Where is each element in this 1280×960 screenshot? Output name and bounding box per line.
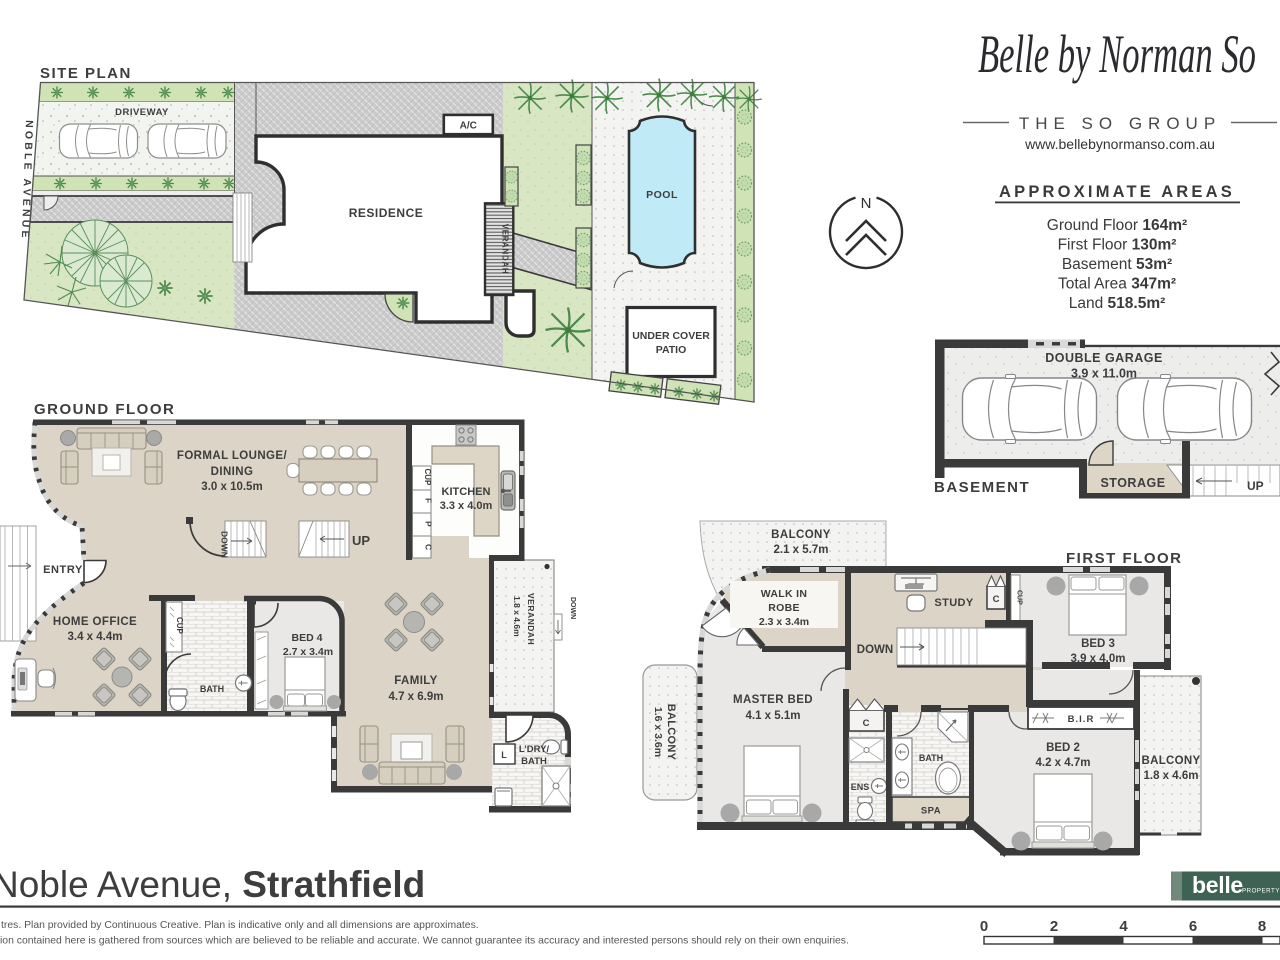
svg-text:CUP: CUP [175,617,184,635]
svg-text:STORAGE: STORAGE [1100,476,1165,490]
svg-text:FAMILY: FAMILY [394,675,438,687]
svg-text:Total Area 347m²: Total Area 347m² [1058,276,1176,293]
svg-text:THE SO GROUP: THE SO GROUP [1019,114,1221,133]
svg-text:BED 3: BED 3 [1081,638,1115,650]
svg-text:DOUBLE GARAGE: DOUBLE GARAGE [1045,351,1163,365]
svg-text:2: 2 [1050,918,1058,935]
svg-text:BED 2: BED 2 [1046,742,1080,754]
svg-text:First Floor 130m²: First Floor 130m² [1058,237,1177,254]
svg-text:C: C [863,718,870,729]
svg-text:WALK IN: WALK IN [761,588,807,600]
svg-text:8: 8 [1258,918,1266,935]
svg-text:Noble Avenue, Strathfield: Noble Avenue, Strathfield [0,864,425,905]
svg-text:Basement 53m²: Basement 53m² [1062,256,1172,273]
svg-text:3.9 x 11.0m: 3.9 x 11.0m [1071,367,1137,381]
svg-text:4.2 x 4.7m: 4.2 x 4.7m [1036,757,1091,769]
svg-text:2.1 x 5.7m: 2.1 x 5.7m [774,544,829,556]
svg-text:MASTER BED: MASTER BED [733,694,813,706]
svg-text:BASEMENT: BASEMENT [934,479,1030,496]
svg-text:ENS: ENS [851,782,870,792]
svg-text:C: C [424,544,434,550]
svg-text:BALCONY: BALCONY [771,529,831,541]
svg-text:DINING: DINING [211,466,254,478]
svg-text:3.0 x 10.5m: 3.0 x 10.5m [201,481,262,493]
svg-text:4.7 x 6.9m: 4.7 x 6.9m [389,691,444,703]
svg-text:Land 518.5m²: Land 518.5m² [1069,295,1166,312]
svg-text:HOME OFFICE: HOME OFFICE [53,616,137,628]
svg-text:P: P [424,521,434,527]
svg-text:BALCONY: BALCONY [1142,755,1201,767]
svg-text:FIRST FLOOR: FIRST FLOOR [1066,550,1183,567]
svg-text:DRIVEWAY: DRIVEWAY [115,107,169,118]
svg-text:2.7 x 3.4m: 2.7 x 3.4m [283,646,333,658]
svg-text:B.I.R: B.I.R [1068,714,1095,725]
svg-text:3.4 x 4.4m: 3.4 x 4.4m [68,631,123,643]
svg-text:STUDY: STUDY [934,597,974,609]
svg-text:KITCHEN: KITCHEN [442,486,491,498]
svg-text:3.3 x 4.0m: 3.3 x 4.0m [440,500,493,512]
svg-text:Belle by Norman So: Belle by Norman So [978,24,1256,84]
svg-text:4: 4 [1119,918,1128,935]
svg-text:SPA: SPA [921,806,941,817]
svg-text:BED 4: BED 4 [292,632,323,644]
svg-text:CUP: CUP [1016,590,1023,605]
svg-text:BALCONY: BALCONY [665,704,677,761]
svg-text:www.bellebynormanso.com.au: www.bellebynormanso.com.au [1024,136,1215,152]
svg-text:UP: UP [352,533,370,548]
svg-text:VERANDAH: VERANDAH [501,224,510,275]
svg-text:ion contained here is gathered: ion contained here is gathered from sour… [0,936,849,947]
svg-text:POOL: POOL [646,189,678,201]
svg-text:C: C [993,594,1000,605]
svg-text:F: F [424,498,434,503]
svg-text:BATH: BATH [919,753,943,763]
svg-text:GROUND FLOOR: GROUND FLOOR [34,401,175,418]
svg-text:4.1 x 5.1m: 4.1 x 5.1m [746,710,801,722]
svg-text:DOWN: DOWN [569,597,576,619]
svg-text:SITE PLAN: SITE PLAN [40,65,132,82]
svg-text:ENTRY: ENTRY [43,564,83,576]
svg-text:UP: UP [1247,479,1264,493]
svg-text:1.6 x 3.6m: 1.6 x 3.6m [652,707,664,757]
svg-text:FORMAL LOUNGE/: FORMAL LOUNGE/ [177,450,288,462]
svg-text:APPROXIMATE AREAS: APPROXIMATE AREAS [999,183,1235,201]
svg-text:PATIO: PATIO [656,344,687,356]
svg-text:UNDER COVER: UNDER COVER [632,330,710,342]
svg-text:L’DRY/: L’DRY/ [519,744,550,755]
svg-text:BATH: BATH [200,684,224,694]
svg-text:PROPERTY: PROPERTY [1242,888,1280,895]
svg-text:1.8 x 4.6m: 1.8 x 4.6m [1144,770,1199,782]
svg-text:1.8 x 4.6m: 1.8 x 4.6m [512,596,522,637]
svg-text:0: 0 [980,918,988,935]
svg-text:RESIDENCE: RESIDENCE [349,206,424,220]
svg-text:ROBE: ROBE [768,602,800,614]
svg-text:BATH: BATH [521,756,547,767]
svg-text:6: 6 [1189,918,1197,935]
svg-text:L: L [501,750,507,760]
svg-text:DOWN: DOWN [857,644,893,656]
svg-text:tres. Plan provided by Continu: tres. Plan provided by Continuous Creati… [1,920,479,931]
svg-text:VERANDAH: VERANDAH [526,593,536,645]
svg-text:CUP: CUP [423,469,432,487]
svg-text:Ground Floor 164m²: Ground Floor 164m² [1047,217,1187,234]
svg-text:A/C: A/C [460,121,477,132]
svg-text:N: N [861,195,872,212]
svg-text:DOWN: DOWN [220,531,230,558]
svg-text:2.3 x 3.4m: 2.3 x 3.4m [759,616,809,628]
svg-text:belle: belle [1192,872,1243,898]
